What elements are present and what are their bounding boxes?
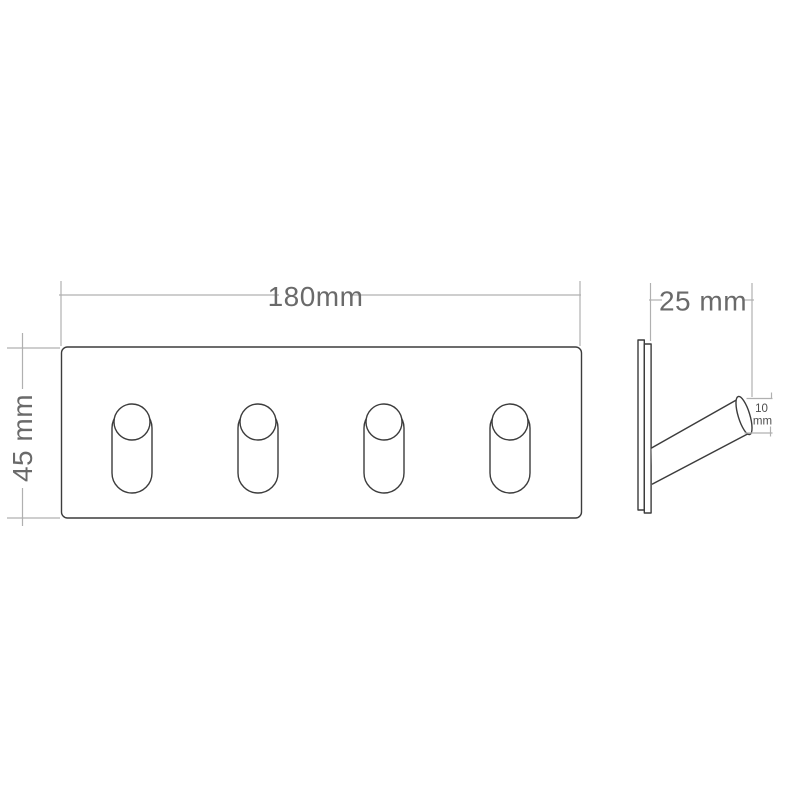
hook-peg — [238, 404, 278, 493]
depth-dimension-label: 25 mm — [659, 286, 747, 317]
side-view: 25 mm 10 mm — [638, 283, 773, 513]
plate-side-front-strip — [644, 344, 651, 513]
width-dimension: 180mm — [59, 281, 581, 346]
plate-side-back-strip — [638, 340, 644, 510]
height-dimension-label: 45 mm — [7, 394, 38, 482]
diameter-label-unit: mm — [753, 416, 772, 428]
depth-dimension: 25 mm — [649, 283, 754, 397]
technical-drawing: 180mm 45 mm — [0, 0, 800, 800]
width-dimension-label: 180mm — [268, 281, 364, 312]
hook-peg — [490, 404, 530, 493]
hook-peg — [364, 404, 404, 493]
hook-side-profile — [652, 395, 756, 484]
hook-peg — [112, 404, 152, 493]
diameter-label-value: 10 — [755, 403, 768, 415]
front-view: 180mm 45 mm — [7, 281, 582, 526]
height-dimension: 45 mm — [7, 333, 60, 526]
drawing-canvas: 180mm 45 mm — [0, 0, 800, 800]
